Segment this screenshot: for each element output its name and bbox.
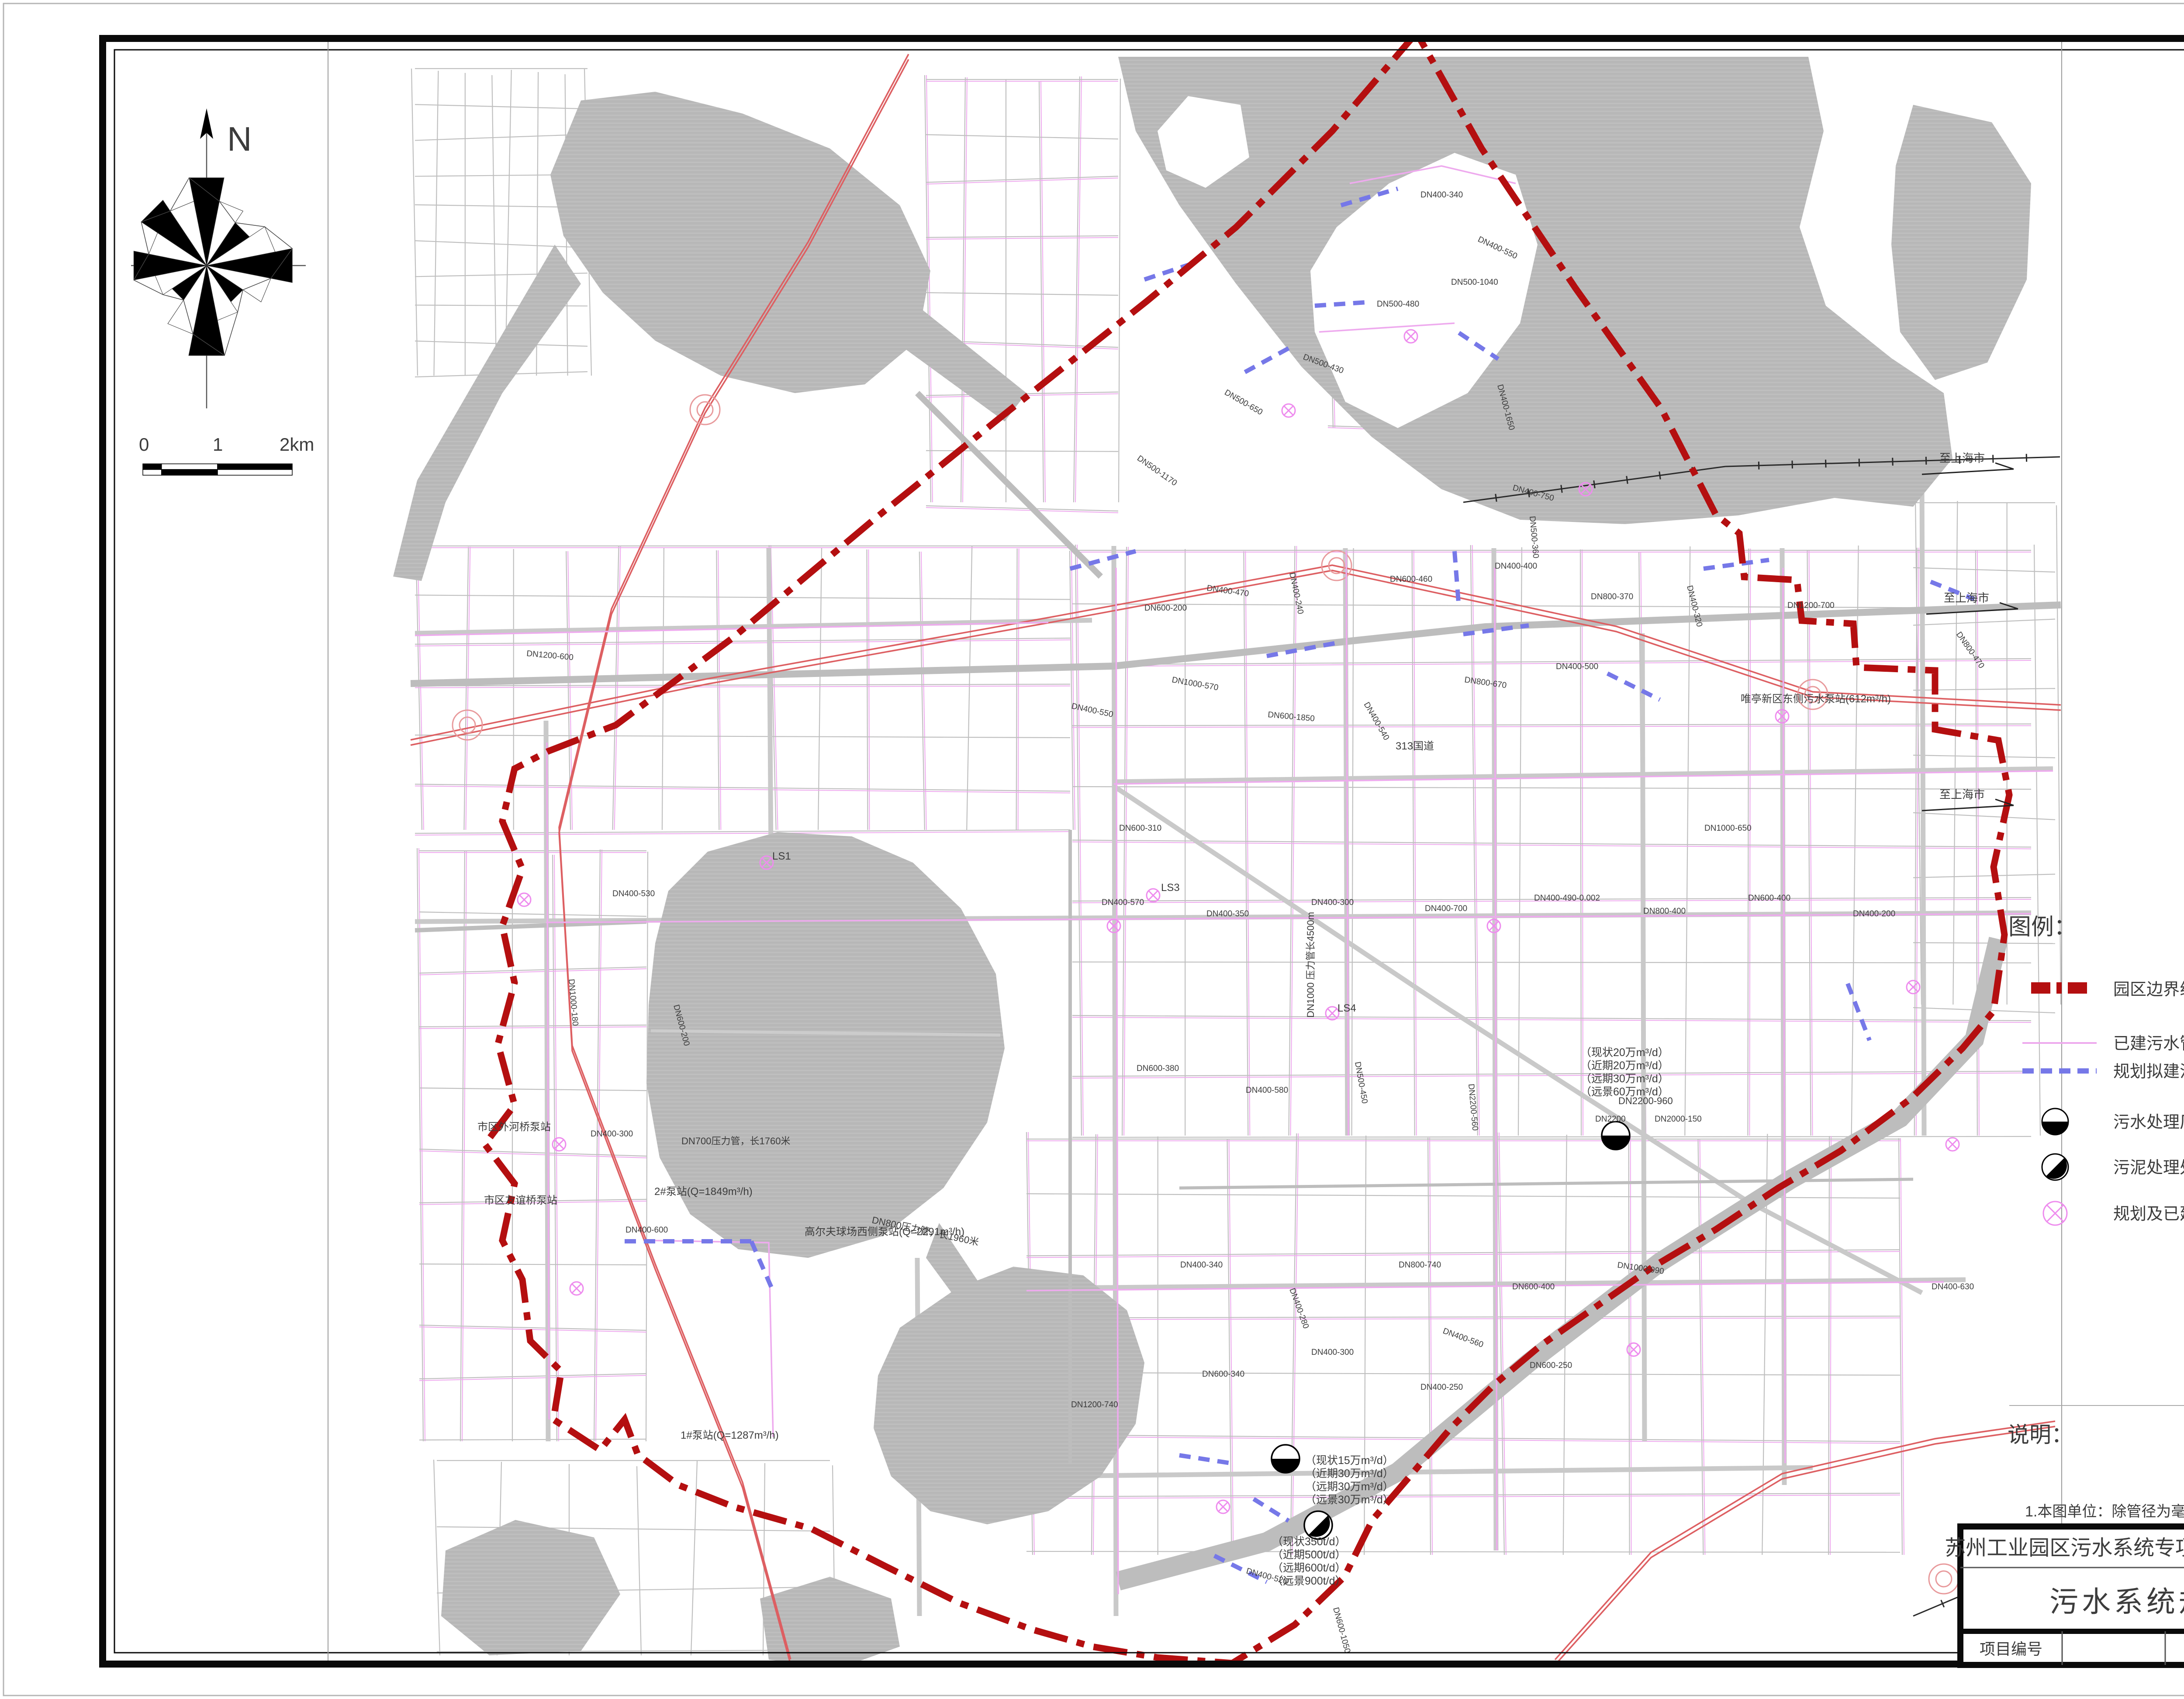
scale-bar: 0 1 2km bbox=[139, 434, 314, 475]
pipe-diameter-label: DN400-570 bbox=[1102, 898, 1144, 907]
svg-text:规划及已建污水泵站: 规划及已建污水泵站 bbox=[2113, 1205, 2184, 1223]
legend-item-sewage-plant: 污水处理厂 bbox=[2042, 1108, 2184, 1135]
pipe-diameter-label: DN1000-180 bbox=[567, 979, 580, 1026]
pipe-diameter-label: DN400-300 bbox=[1311, 898, 1354, 907]
road-name-label: 313国道 bbox=[1396, 740, 1434, 752]
pipe-diameter-label: DN400-250 bbox=[1420, 1383, 1463, 1392]
pump-station-label: 1#泵站(Q=1287m³/h) bbox=[681, 1430, 779, 1441]
pipe-diameter-label: DN1200-740 bbox=[1071, 1400, 1118, 1409]
sludge-plant-symbol bbox=[1304, 1511, 1332, 1539]
pipe-diameter-label: DN400-200 bbox=[1853, 909, 1895, 919]
pipe-diameter-label: DN400-560 bbox=[1441, 1326, 1484, 1350]
wwtp-annotation-2: （远期30万m³/d） bbox=[1305, 1481, 1394, 1493]
wwtp-annotation-1: （远景60万m³/d） bbox=[1580, 1086, 1669, 1098]
wwtp-annotation-2: （远景30万m³/d） bbox=[1305, 1494, 1394, 1506]
pump-station-label: LS4 bbox=[1337, 1002, 1356, 1014]
trunk-pipe-label: DN1000 压力管长4500m bbox=[1305, 912, 1316, 1018]
pump-station-symbol bbox=[570, 1282, 583, 1295]
wwtp-annotation-2: （近期30万m³/d） bbox=[1305, 1468, 1394, 1480]
direction-label: 至上海市 bbox=[1944, 591, 1989, 604]
pipe-diameter-label: DN400-300 bbox=[591, 1129, 633, 1139]
pump-station-label: LS1 bbox=[772, 850, 791, 862]
sludge-annotation: （远期600t/d） bbox=[1272, 1562, 1346, 1574]
legend-item-sludge-plant: 污泥处理处置厂 bbox=[2042, 1154, 2184, 1180]
pipe-diameter-label: DN600-380 bbox=[1137, 1064, 1179, 1073]
pipe-diameter-label: DN400-630 bbox=[1932, 1282, 1974, 1292]
pipe-diameter-label: DN400-280 bbox=[1287, 1287, 1310, 1330]
pipe-diameter-label: DN1000-650 bbox=[1704, 824, 1752, 833]
pipe-diameter-label: DN800-400 bbox=[1643, 907, 1686, 916]
wwtp-annotation-1: （远期30万m³/d） bbox=[1580, 1073, 1669, 1085]
pipe-diameter-label: DN600-340 bbox=[1202, 1370, 1244, 1379]
pipe-diameter-label: DN600-400 bbox=[1512, 1282, 1555, 1292]
sludge-annotation: （近期500t/d） bbox=[1272, 1549, 1346, 1561]
pipe-diameter-label: DN400-240 bbox=[1287, 572, 1305, 615]
pipe-diameter-label: DN600-310 bbox=[1119, 824, 1161, 833]
svg-text:污水处理厂: 污水处理厂 bbox=[2113, 1113, 2184, 1132]
pipe-diameter-label: DN600-1850 bbox=[1268, 710, 1315, 723]
pipe-diameter-label: DN600-1050 bbox=[1331, 1606, 1352, 1654]
pipe-diameter-label: DN400-340 bbox=[1180, 1260, 1223, 1270]
pump-station-symbol bbox=[1946, 1138, 1959, 1151]
pipe-diameter-label: DN600-250 bbox=[1530, 1361, 1572, 1370]
pump-station-label: 2#泵站(Q=1849m³/h) bbox=[654, 1186, 753, 1198]
pipe-diameter-label: DN800-470 bbox=[1954, 630, 1986, 670]
pipe-diameter-label: DN400-400 bbox=[1495, 562, 1537, 571]
direction-label: 至上海市 bbox=[1939, 788, 1985, 801]
pipe-diameter-label: DN400-470 bbox=[1206, 584, 1249, 598]
pipe-diameter-label: DN2000-150 bbox=[1655, 1115, 1702, 1124]
svg-text:已建污水管道: 已建污水管道 bbox=[2113, 1035, 2184, 1053]
pipe-diameter-label: DN600-460 bbox=[1390, 575, 1432, 584]
pipe-diameter-label: DN800-740 bbox=[1399, 1260, 1441, 1270]
pipe-diameter-label: DN800-670 bbox=[1464, 675, 1507, 690]
pipe-diameter-label: DN1000-570 bbox=[1171, 675, 1219, 692]
trunk-pipe-label: DN700压力管，长1760米 bbox=[681, 1136, 790, 1146]
drawing-frame-outer bbox=[103, 38, 2184, 1664]
pipe-diameter-label: DN400-600 bbox=[625, 1226, 668, 1235]
pipe-diameter-label: DN800-370 bbox=[1591, 592, 1633, 601]
direction-label: 至上海市 bbox=[1939, 452, 1985, 465]
pipe-diameter-label: DN500-480 bbox=[1377, 300, 1419, 309]
pipe-diameter-label: DN500-450 bbox=[1353, 1061, 1369, 1104]
pump-station-label: 高尔夫球场西侧泵站(Q=2291m³/h) bbox=[805, 1226, 964, 1238]
pipe-diameter-label: DN400-700 bbox=[1425, 904, 1467, 913]
drawing-sheet: DN600-200DN400-470DN400-240DN600-460DN40… bbox=[0, 0, 2184, 1699]
pump-station-symbol bbox=[1326, 1007, 1339, 1020]
notes: 说明： 1.本图单位：除管径为毫米外，其余均为米。 bbox=[2008, 1423, 2184, 1520]
drawing-title: 污水系统规划图 bbox=[2049, 1585, 2184, 1618]
legend: 图例： 园区边界线 已建污水管道 规划拟建污水管道 污水处理厂 污泥处理处置厂 bbox=[2008, 915, 2184, 1225]
pipe-diameter-label: DN500-1040 bbox=[1451, 278, 1498, 287]
sewage-plant-symbol bbox=[1272, 1445, 1299, 1473]
wwtp-annotation-2: （现状15万m³/d） bbox=[1305, 1454, 1394, 1467]
svg-text:污泥处理处置厂: 污泥处理处置厂 bbox=[2113, 1159, 2184, 1177]
pump-station-label: LS3 bbox=[1161, 882, 1180, 894]
pump-station-symbol bbox=[1282, 404, 1295, 417]
wwtp-annotation-1: （现状20万m³/d） bbox=[1580, 1046, 1669, 1059]
legend-item-planned-pipe: 规划拟建污水管道 bbox=[2022, 1063, 2184, 1081]
map-area: DN600-200DN400-470DN400-240DN600-460DN40… bbox=[393, 33, 2061, 1668]
wind-rose-icon bbox=[134, 178, 292, 356]
pump-station-label: 市区外河桥泵站 bbox=[477, 1121, 551, 1133]
notes-title: 说明： bbox=[2008, 1423, 2073, 1447]
pipe-diameter-label: DN400-490-0.002 bbox=[1534, 894, 1600, 903]
pump-station-symbol bbox=[1907, 981, 1920, 994]
scale-label-0: 0 bbox=[139, 434, 149, 455]
project-title: 苏州工业园区污水系统专项规划（2015-2030） bbox=[1945, 1537, 2184, 1560]
pipe-diameter-label: DN600-200 bbox=[1144, 604, 1187, 613]
pump-station-symbol bbox=[518, 893, 531, 906]
pump-station-label: 唯亭新区东侧污水泵站(612m³/h) bbox=[1741, 693, 1891, 705]
wwtp-annotation-1: （近期20万m³/d） bbox=[1580, 1060, 1669, 1072]
pipe-diameter-label: DN400-300 bbox=[1311, 1348, 1354, 1357]
pipe-diameter-label: DN2200 bbox=[1595, 1115, 1626, 1124]
pump-station-label: 市区友谊桥泵站 bbox=[484, 1195, 557, 1206]
pipe-diameter-label: DN2200-560 bbox=[1466, 1084, 1479, 1131]
svg-text:规划拟建污水管道: 规划拟建污水管道 bbox=[2113, 1063, 2184, 1081]
notes-line-1: 1.本图单位：除管径为毫米外，其余均为米。 bbox=[2025, 1503, 2184, 1520]
pipe-diameter-label: DN600-400 bbox=[1748, 894, 1790, 903]
compass: N bbox=[131, 108, 306, 408]
pipe-diameter-label: DN400-530 bbox=[612, 889, 655, 898]
pipe-diameter-label: DN400-340 bbox=[1420, 190, 1463, 200]
pump-station-symbol bbox=[1216, 1500, 1230, 1513]
direction-arrow-icon bbox=[1922, 805, 2014, 811]
pipe-diameter-label: DN500-650 bbox=[1223, 388, 1265, 417]
pipe-diameter-label: DN500-1170 bbox=[1135, 454, 1178, 488]
pipe-diameter-label: DN400-580 bbox=[1246, 1086, 1288, 1095]
legend-item-pump-station: 规划及已建污水泵站 bbox=[2043, 1202, 2184, 1225]
legend-item-existing-pipe: 已建污水管道 bbox=[2022, 1035, 2184, 1053]
pipe-diameter-label: DN400-350 bbox=[1206, 909, 1249, 919]
north-label: N bbox=[227, 120, 252, 158]
scale-label-1: 1 bbox=[213, 434, 223, 455]
pump-station-symbol bbox=[1147, 889, 1160, 902]
pipe-diameter-label: DN1200-700 bbox=[1787, 601, 1835, 610]
sludge-annotation: （现状350t/d） bbox=[1272, 1536, 1346, 1548]
pipe-diameter-label: DN1200-600 bbox=[526, 649, 574, 662]
sewage-plant-symbol bbox=[1602, 1122, 1630, 1150]
legend-item-park-boundary: 园区边界线 bbox=[2031, 981, 2184, 999]
project-no-label: 项目编号 bbox=[1980, 1640, 2042, 1658]
title-block: 苏州工业园区污水系统专项规划（2015-2030） 污水系统规划图 项目编号 附… bbox=[1945, 1526, 2184, 1665]
pipe-diameter-label: DN400-540 bbox=[1362, 701, 1391, 742]
pipe-diameter-label: DN400-500 bbox=[1556, 662, 1598, 671]
scale-label-2km: 2km bbox=[280, 434, 314, 455]
legend-title: 图例： bbox=[2008, 915, 2077, 940]
sludge-annotation: （远景900t/d） bbox=[1272, 1575, 1346, 1587]
svg-text:园区边界线: 园区边界线 bbox=[2113, 981, 2184, 999]
